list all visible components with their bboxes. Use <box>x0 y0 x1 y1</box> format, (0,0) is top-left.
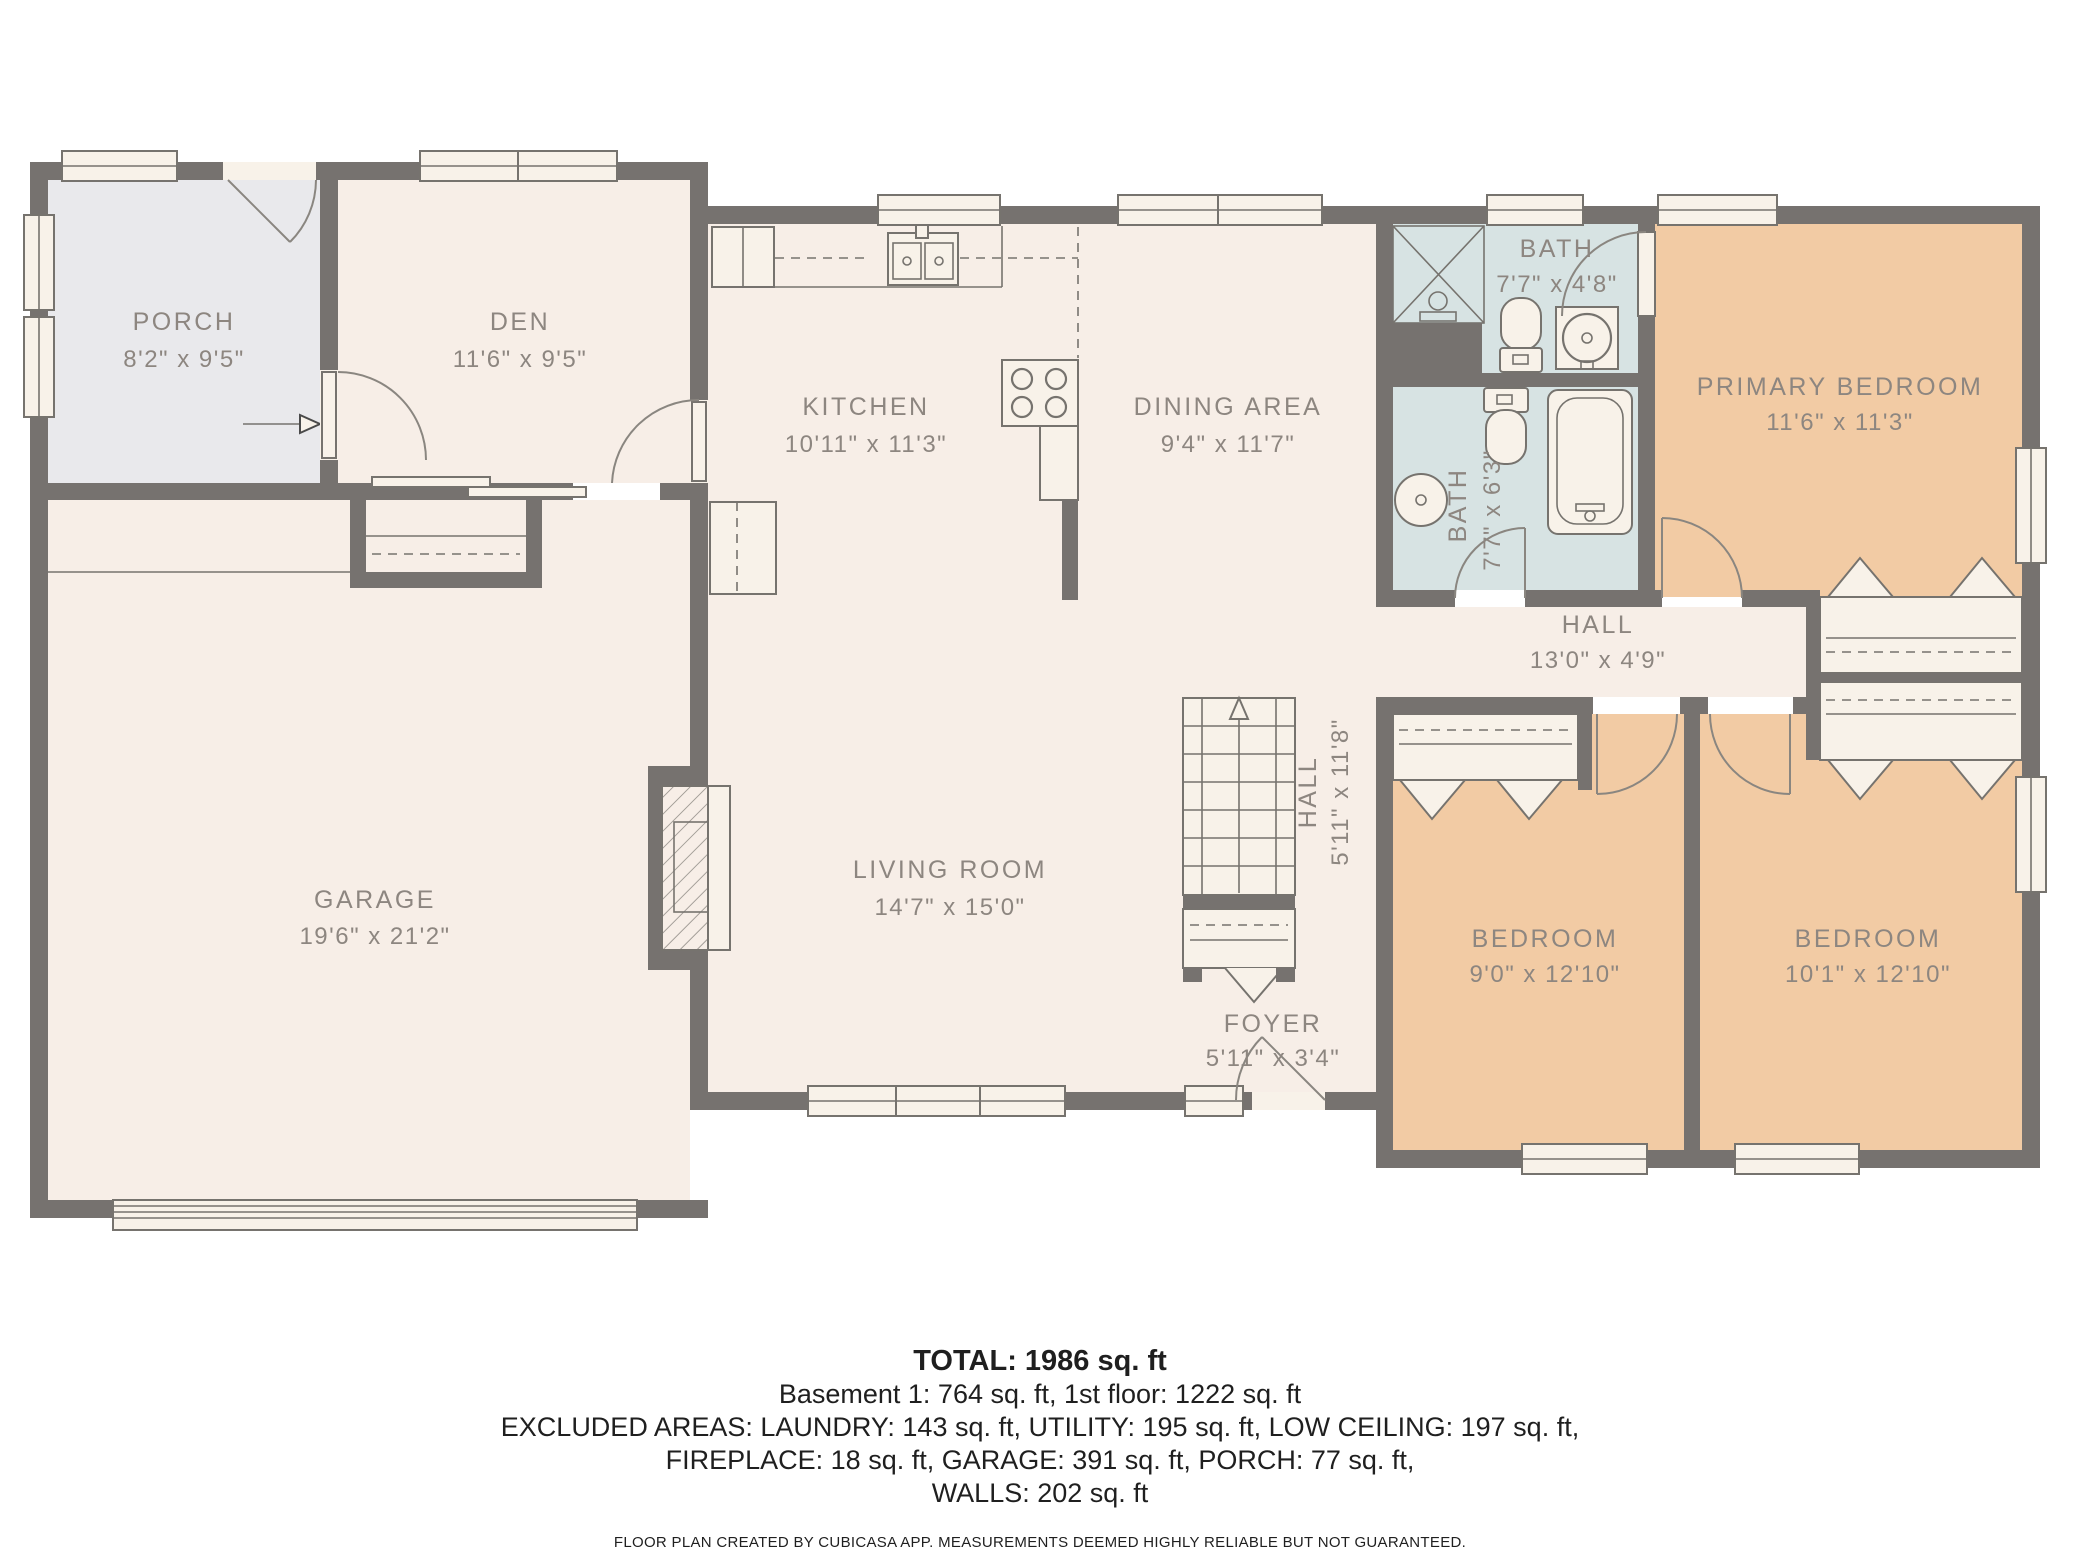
stove-icon <box>1002 360 1078 426</box>
bath2-dims: 7'7" x 6'3" <box>1479 449 1506 570</box>
kitchen-name: KITCHEN <box>802 393 929 421</box>
bath1-dims: 7'7" x 4'8" <box>1496 271 1617 298</box>
foyer-closet <box>1183 909 1295 968</box>
kitchen-dims: 10'11" x 11'3" <box>785 431 947 458</box>
staircase <box>1183 698 1295 1002</box>
den-dims: 11'6" x 9'5" <box>453 346 588 373</box>
kitchen-faucet-icon <box>916 224 928 238</box>
kitchen-sink-icon <box>888 233 958 285</box>
foyer-dims: 5'11" x 3'4" <box>1206 1045 1341 1072</box>
living-name: LIVING ROOM <box>853 856 1047 884</box>
pedestal-sink-icon <box>1395 474 1447 526</box>
primary-closet <box>1820 597 2022 673</box>
bathtub-icon <box>1548 390 1632 534</box>
toilet-icon <box>1500 298 1542 372</box>
counter-return <box>1040 426 1078 500</box>
fireplace-hearth <box>708 786 730 950</box>
hall-dims: 13'0" x 4'9" <box>1530 647 1666 674</box>
living-dims: 14'7" x 15'0" <box>874 894 1025 921</box>
den-name: DEN <box>490 308 550 336</box>
footer-disclaimer: FLOOR PLAN CREATED BY CUBICASA APP. MEAS… <box>614 1534 1466 1551</box>
porch-dims: 8'2" x 9'5" <box>123 346 244 373</box>
hall-name: HALL <box>1562 611 1635 639</box>
room-area-garage <box>48 500 690 1200</box>
footer-line2: EXCLUDED AREAS: LAUNDRY: 143 sq. ft, UTI… <box>501 1412 1579 1442</box>
bath2-name: BATH <box>1444 468 1472 543</box>
bedroom2-dims: 10'1" x 12'10" <box>1785 961 1951 988</box>
dining-name: DINING AREA <box>1134 393 1323 421</box>
stair-hall-name: HALL <box>1294 756 1322 829</box>
stair-hall-dims: 5'11" x 11'8" <box>1327 718 1354 866</box>
footer-line4: WALLS: 202 sq. ft <box>932 1478 1149 1508</box>
footer-line3: FIREPLACE: 18 sq. ft, GARAGE: 391 sq. ft… <box>666 1445 1415 1475</box>
fireplace <box>648 766 730 970</box>
floor-plan: PORCH 8'2" x 9'5" DEN 11'6" x 9'5" KITCH… <box>0 0 2080 1560</box>
bathroom-sink-icon <box>1556 307 1618 369</box>
bath1-name: BATH <box>1520 235 1595 263</box>
garage-name: GARAGE <box>314 886 436 914</box>
garage-door <box>113 1200 637 1230</box>
primary-dims: 11'6" x 11'3" <box>1766 409 1914 436</box>
dining-dims: 9'4" x 11'7" <box>1161 431 1296 458</box>
bedroom1-dims: 9'0" x 12'10" <box>1469 961 1620 988</box>
foyer-name: FOYER <box>1224 1010 1323 1038</box>
bedroom1-name: BEDROOM <box>1472 925 1619 953</box>
bedroom2-closet <box>1820 682 2022 760</box>
footer-total: TOTAL: 1986 sq. ft <box>913 1345 1167 1377</box>
fireplace-hatch <box>662 786 708 950</box>
primary-name: PRIMARY BEDROOM <box>1697 373 1984 401</box>
bedroom1-closet <box>1393 714 1578 780</box>
bedroom2-name: BEDROOM <box>1795 925 1942 953</box>
footer-line1: Basement 1: 764 sq. ft, 1st floor: 1222 … <box>779 1379 1302 1409</box>
garage-dims: 19'6" x 21'2" <box>299 923 450 950</box>
floor-plan-page: PORCH 8'2" x 9'5" DEN 11'6" x 9'5" KITCH… <box>0 0 2080 1560</box>
kitchen-cabinet <box>710 502 776 594</box>
porch-name: PORCH <box>133 308 236 336</box>
room-areas <box>48 180 2022 1200</box>
footer: TOTAL: 1986 sq. ft Basement 1: 764 sq. f… <box>501 1345 1579 1551</box>
